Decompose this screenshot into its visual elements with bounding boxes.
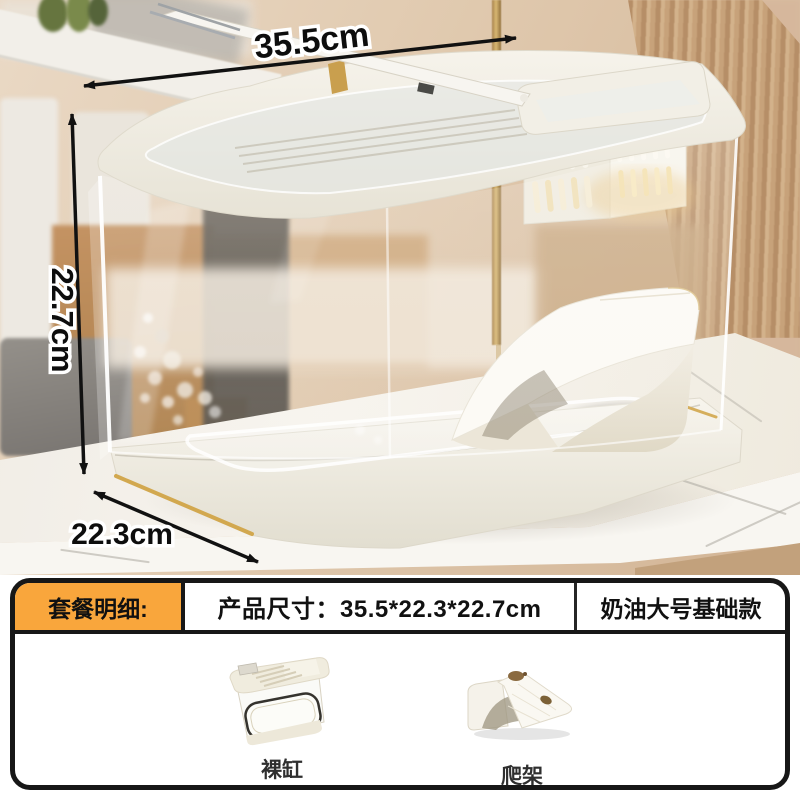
variant-label: 奶油大号基础款 — [574, 583, 785, 630]
included-item-bare-tank: 裸缸 — [222, 648, 342, 784]
panel-header: 套餐明细: 产品尺寸：35.5*22.3*22.7cm 奶油大号基础款 — [15, 583, 785, 634]
item-caption-climb-ramp: 爬架 — [501, 760, 543, 790]
product-detail-image: 35.5cm 22.7cm 22.3cm 套餐明细: 产品尺寸：35.5*22.… — [0, 0, 800, 800]
product-size-label: 产品尺寸：35.5*22.3*22.7cm — [185, 583, 574, 630]
package-detail-badge: 套餐明细: — [15, 583, 185, 630]
item-caption-bare-tank: 裸缸 — [261, 754, 303, 784]
turtle-decal — [508, 671, 524, 681]
climb-ramp-thumbnail — [452, 654, 592, 754]
depth-dimension-label: 22.3cm — [71, 518, 173, 551]
height-dimension-label: 22.7cm — [45, 267, 80, 372]
product-photo: 35.5cm 22.7cm 22.3cm — [0, 0, 800, 575]
package-detail-panel: 套餐明细: 产品尺寸：35.5*22.3*22.7cm 奶油大号基础款 — [10, 578, 790, 790]
included-items: 裸缸 爬架 — [29, 634, 785, 790]
tank-illustration: 35.5cm 22.7cm 22.3cm — [0, 0, 800, 575]
bare-tank-thumbnail — [222, 648, 342, 748]
included-item-climb-ramp: 爬架 — [452, 648, 592, 790]
